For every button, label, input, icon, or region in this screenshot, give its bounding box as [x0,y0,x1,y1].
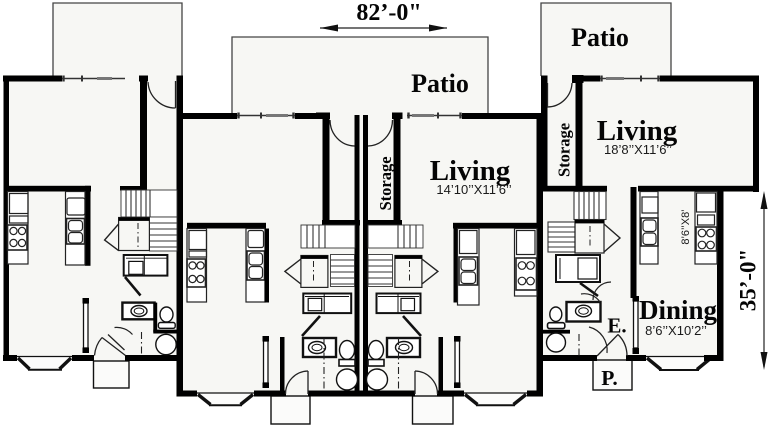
svg-text:Patio: Patio [411,69,469,98]
svg-text:82’-0": 82’-0" [356,0,421,26]
svg-text:18’8’’X11’6’’: 18’8’’X11’6’’ [604,142,672,157]
svg-text:Storage: Storage [376,156,395,210]
svg-text:Dining: Dining [639,295,718,325]
svg-text:35’-0": 35’-0" [736,249,761,312]
svg-text:Patio: Patio [571,23,629,52]
svg-text:8’6’’X8’: 8’6’’X8’ [680,209,692,244]
svg-text:14’10’’X11’6’’: 14’10’’X11’6’’ [436,182,511,197]
svg-text:8’6’’X10’2’’: 8’6’’X10’2’’ [645,323,707,338]
svg-text:E.: E. [607,314,626,338]
svg-text:Storage: Storage [555,123,574,177]
svg-text:P.: P. [601,366,618,390]
